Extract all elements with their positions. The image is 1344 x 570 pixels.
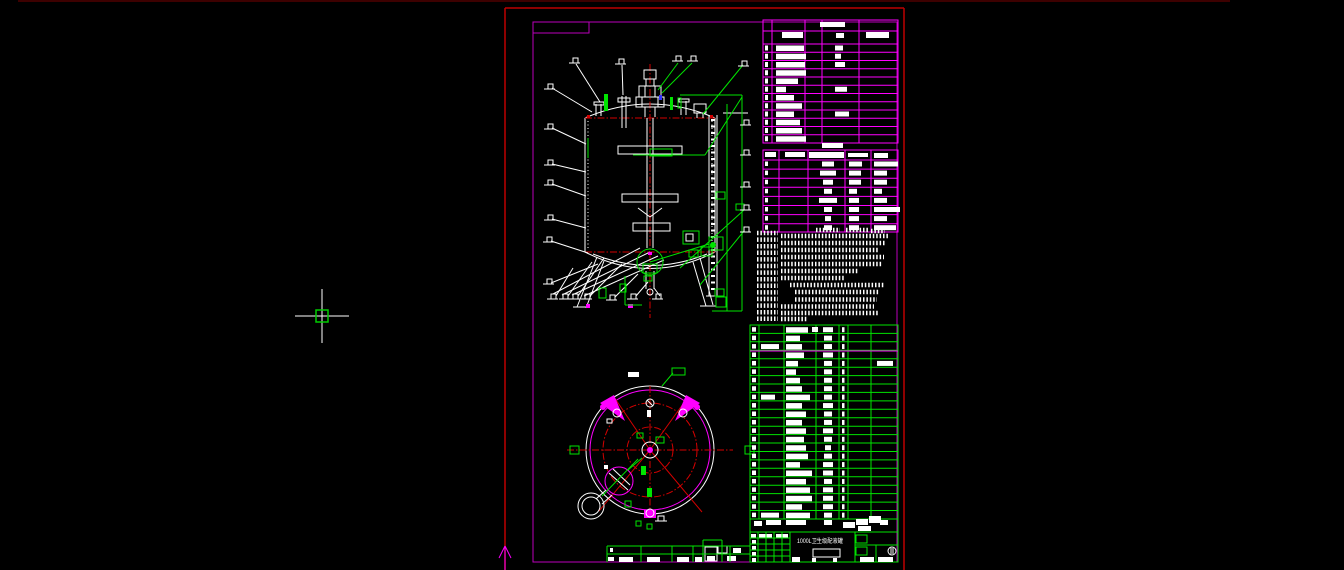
parts-table-mid [763, 143, 900, 232]
technical-notes-block [757, 230, 888, 319]
drawing-svg: 1000L卫生级配液罐 [0, 0, 1344, 570]
parts-table-top [763, 20, 898, 143]
title-block: 1000L卫生级配液罐 [750, 516, 898, 562]
tank-elevation-view [543, 56, 751, 318]
tank-plan-view [567, 368, 754, 529]
cad-canvas[interactable]: 1000L卫生级配液罐 [0, 0, 1344, 570]
bom-table [750, 325, 898, 519]
drawing-title: 1000L卫生级配液罐 [797, 537, 843, 545]
signature-strip [607, 540, 750, 562]
crosshair-cursor[interactable] [295, 289, 349, 343]
sheet-frame [18, 1, 1230, 570]
